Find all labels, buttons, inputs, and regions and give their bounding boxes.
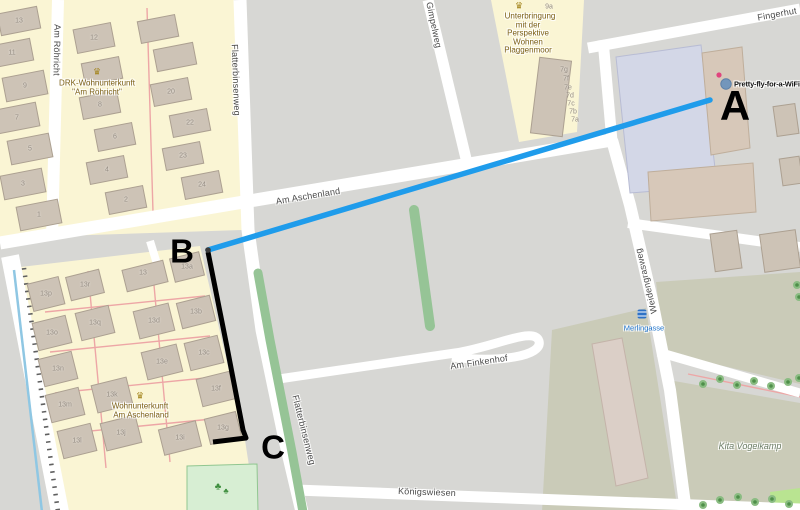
housenumber-label: 4 (105, 167, 109, 174)
housenumber-label: 7e (564, 85, 572, 92)
housenumber-label: 7g (560, 67, 568, 74)
grass-strip-mid (414, 210, 430, 326)
poi-label-plaggenmoor-line5: Plaggenmoor (504, 46, 552, 55)
housenumber-label: 8 (98, 102, 102, 109)
housenumber-label: 22 (186, 120, 194, 127)
building (710, 230, 742, 271)
shelter-icon: ♛ (136, 391, 144, 402)
tree-icon (735, 383, 739, 387)
grass-strip-flatterbinsenweg (258, 273, 303, 510)
housenumber-label: 12 (90, 35, 98, 42)
housenumber-label: 13l (72, 438, 81, 445)
housenumber-label: 13q (89, 320, 101, 327)
housenumber-label: 13b (190, 309, 202, 316)
housenumber-label: 13 (139, 270, 147, 277)
housenumber-label: 9 (23, 83, 27, 90)
point-label-c: C (261, 431, 285, 464)
tree-icon (770, 497, 774, 501)
poi-label-plaggenmoor-line3: Perspektive (507, 29, 549, 38)
housenumber-label: 7 (15, 115, 19, 122)
bus-stop-icon[interactable] (638, 310, 647, 319)
housenumber-label: 23 (179, 153, 187, 160)
tree-icon: ♣ (223, 487, 228, 496)
street-label-am-roehricht: Am Röhricht (52, 24, 63, 76)
tree-icon (795, 283, 799, 287)
housenumber-label: 6 (113, 134, 117, 141)
housenumber-label: 7d (566, 93, 574, 100)
shelter-icon: ♛ (93, 67, 101, 78)
tree-icon (718, 377, 722, 381)
poi-label-drk-line2: "Am Röhricht" (72, 88, 122, 97)
housenumber-label: 13i (175, 435, 184, 442)
tree-icon (752, 379, 756, 383)
building (779, 156, 800, 186)
poi-label-drk-line1: DRK-Wohnunterkunft (59, 79, 135, 88)
housenumber-label: 13r (80, 282, 90, 289)
housenumber-label: 13d (148, 318, 160, 325)
housenumber-label: 2 (124, 197, 128, 204)
tree-icon (701, 503, 705, 507)
housenumber-label: 9a (545, 4, 553, 11)
housenumber-label: 7f (563, 76, 569, 83)
building (760, 230, 800, 273)
housenumber-label: 13c (198, 350, 209, 357)
transit-label-merlingasse: Merlingasse (624, 324, 664, 333)
housenumber-label: 13j (116, 430, 125, 437)
tree-icon (701, 382, 705, 386)
poi-dot-pink (716, 72, 721, 77)
point-label-b: B (170, 235, 194, 268)
housenumber-label: 13k (106, 392, 117, 399)
shelter-icon: ♛ (515, 1, 523, 12)
poi-label-plaggenmoor-line1: Unterbringung (505, 12, 556, 21)
poi-label-kita-vogelkamp: Kita Vogelkamp (719, 441, 782, 451)
tree-icon: ♣ (215, 482, 222, 493)
tree-icon (769, 384, 773, 388)
housenumber-label: 13g (217, 425, 229, 432)
housenumber-label: 7a (571, 117, 579, 124)
housenumber-label: 13p (40, 291, 52, 298)
field-area-ne (656, 272, 800, 384)
housenumber-label: 7c (567, 101, 574, 108)
housenumber-label: 13f (211, 386, 221, 393)
tree-icon (718, 498, 722, 502)
housenumber-label: 5 (28, 146, 32, 153)
housenumber-label: 13o (46, 330, 58, 337)
poi-label-aschenland-line1: Wohnunterkunft (112, 402, 168, 411)
tree-icon (736, 495, 740, 499)
housenumber-label: 13n (52, 366, 64, 373)
housenumber-label: 11 (8, 50, 15, 57)
wifi-marker-label: Pretty-fly-for-a-WiFi (734, 80, 800, 89)
tree-icon (787, 502, 791, 506)
housenumber-label: 13m (58, 402, 72, 409)
map-canvas[interactable]: Am Röhricht Flatterbinsenweg Flatterbins… (0, 0, 800, 510)
building (648, 163, 756, 221)
tree-icon (786, 380, 790, 384)
housenumber-label: 13 (15, 18, 23, 25)
street-label-koenigswiesen: Königswiesen (398, 486, 456, 498)
point-label-a: A (720, 85, 750, 127)
poi-label-aschenland-line2: Am Aschenland (113, 411, 169, 420)
road-weidengras-north (603, 40, 612, 141)
housenumber-label: 24 (198, 182, 206, 189)
tree-icon (753, 500, 757, 504)
housenumber-label: 1 (37, 212, 41, 219)
building (773, 104, 799, 137)
route-start-dot (205, 247, 211, 253)
housenumber-label: 3 (21, 181, 25, 188)
housenumber-label: 13e (156, 359, 168, 366)
housenumber-label: 7b (569, 109, 577, 116)
housenumber-label: 20 (167, 89, 175, 96)
